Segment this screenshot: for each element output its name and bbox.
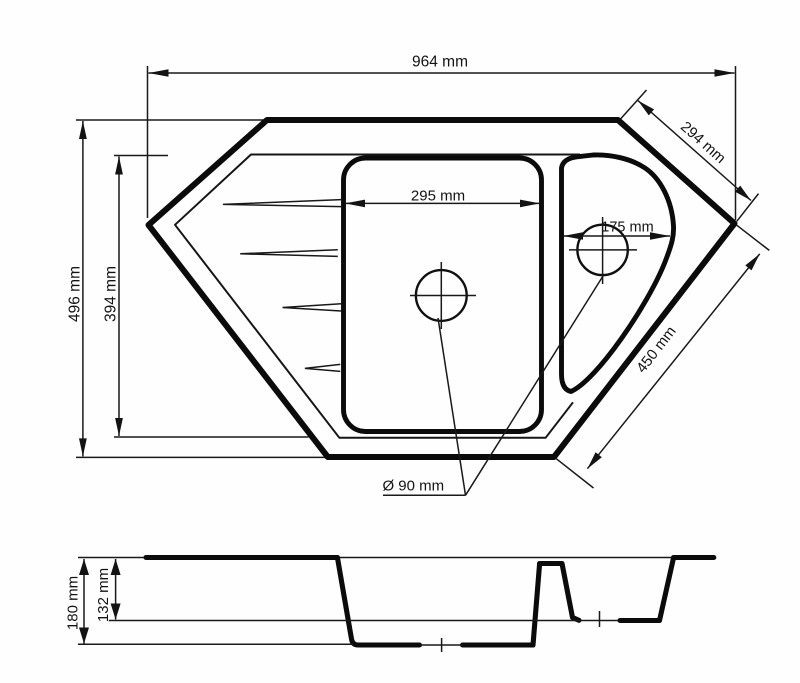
svg-text:295 mm: 295 mm: [411, 188, 465, 205]
svg-text:175 mm: 175 mm: [601, 220, 653, 236]
svg-text:180 mm: 180 mm: [65, 576, 82, 630]
svg-text:394 mm: 394 mm: [103, 266, 120, 322]
svg-text:496 mm: 496 mm: [67, 266, 84, 322]
svg-text:Ø 90 mm: Ø 90 mm: [382, 478, 444, 495]
svg-text:132 mm: 132 mm: [95, 568, 112, 622]
svg-text:964 mm: 964 mm: [412, 54, 468, 71]
